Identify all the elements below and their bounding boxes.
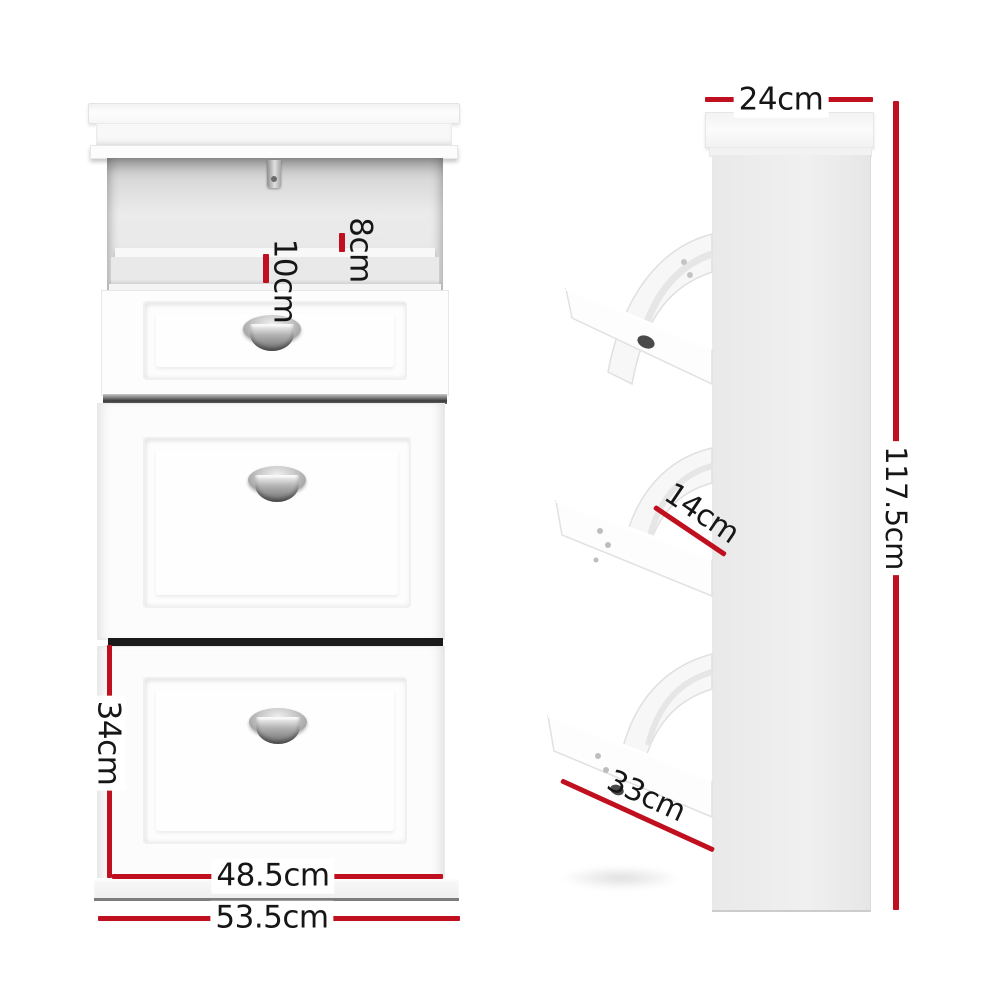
drawer-panel [143,437,411,608]
dim-label-cabinet-height: 117.5cm [880,441,912,575]
screw-icon [594,558,599,563]
dim-label-drawer-width: 48.5cm [211,859,334,894]
dim-label-cabinet-depth: 24cm [734,83,829,118]
dim-label-shelf-back-depth: 8cm [344,217,377,282]
hinge-catch-icon [267,160,281,188]
handle-cup [255,475,299,502]
drawer-panel [143,677,407,844]
dim-label-bottom-drawer-height: 34cm [91,696,126,791]
screw-icon [687,272,693,278]
front-crown-base [96,123,452,146]
cup-handle-icon [249,708,307,744]
middle-drawer [97,403,445,640]
tipout-shelf-top [566,234,712,384]
screw-icon [605,542,611,548]
front-flap-top-edge [90,145,458,159]
handle-cup [256,717,300,744]
dim-label-shelf-front-depth: 10cm [268,239,301,324]
product-dimension-diagram: 8cm 10cm 34cm 48.5cm 53.5cm 24cm 117.5cm… [0,0,1000,1000]
handle-cup [250,324,294,351]
cup-handle-icon [248,466,306,502]
bottom-drawer [97,646,445,880]
screw-icon [597,528,603,534]
front-crown-top [88,103,460,124]
drawer-separator [108,638,443,646]
dim-label-cabinet-width: 53.5cm [210,901,333,936]
screw-icon [681,259,687,265]
